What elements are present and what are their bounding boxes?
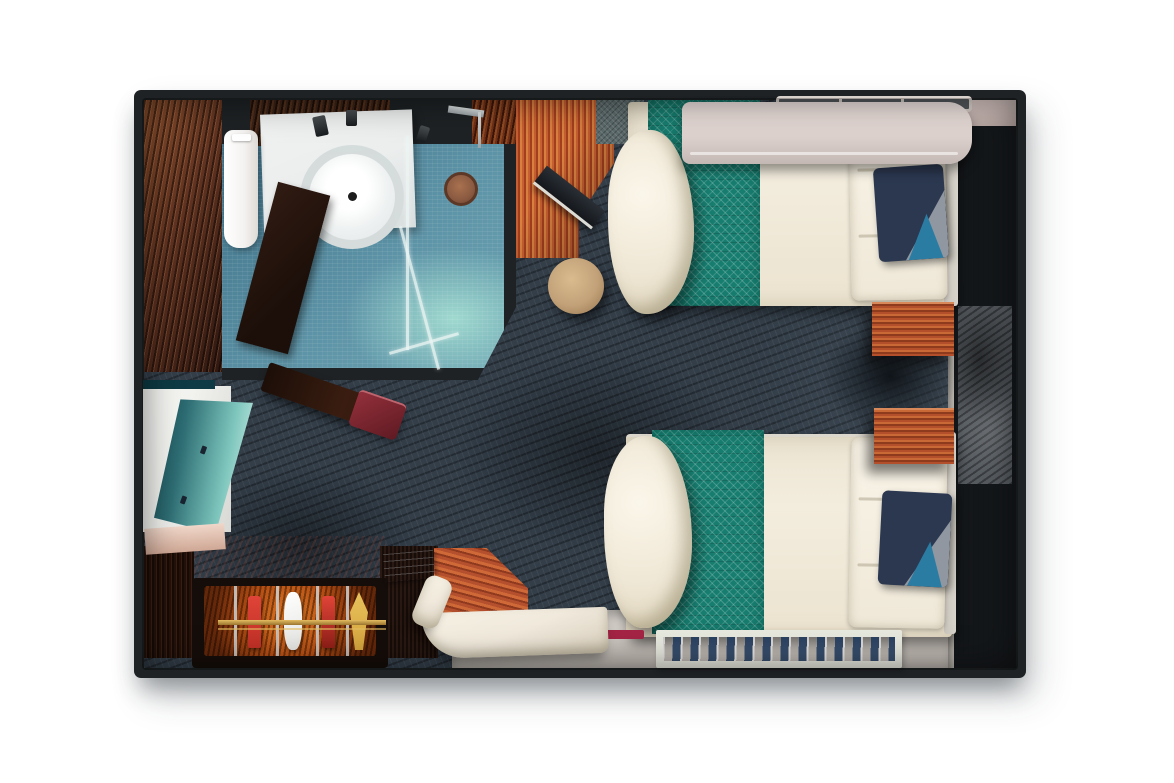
faucet-knob-left [346,110,357,126]
tv-top-band [143,380,215,389]
faucet-knob-right [416,125,430,143]
entry-corridor-floor [144,100,222,372]
minibar-cabinet [192,578,388,668]
accent-pillow-upper [873,164,949,263]
round-stool [548,258,604,314]
bathroom [222,100,516,380]
nightstand-upper [872,302,954,356]
brass-rail-lower [218,628,386,630]
brass-rail [218,620,386,625]
pullman-berth [682,102,972,164]
sink-drain [348,192,357,201]
shower-mat [444,172,478,206]
minibar-backlight [204,586,376,656]
corner-seat [421,607,608,659]
accent-pillow-lower [878,490,953,588]
stateroom-floor-plan [134,90,1026,678]
area-rug [656,630,902,668]
page: { "meta": { "view": "top-down-3d-floor-p… [0,0,1174,783]
toilet-flush-button [232,134,251,141]
tv-base-shelf [144,523,226,555]
nightstand-lower [874,408,954,464]
tv-assembly [143,380,253,558]
console-wood-panel [144,546,194,658]
shower-pole [478,112,481,148]
toilet [224,130,258,248]
